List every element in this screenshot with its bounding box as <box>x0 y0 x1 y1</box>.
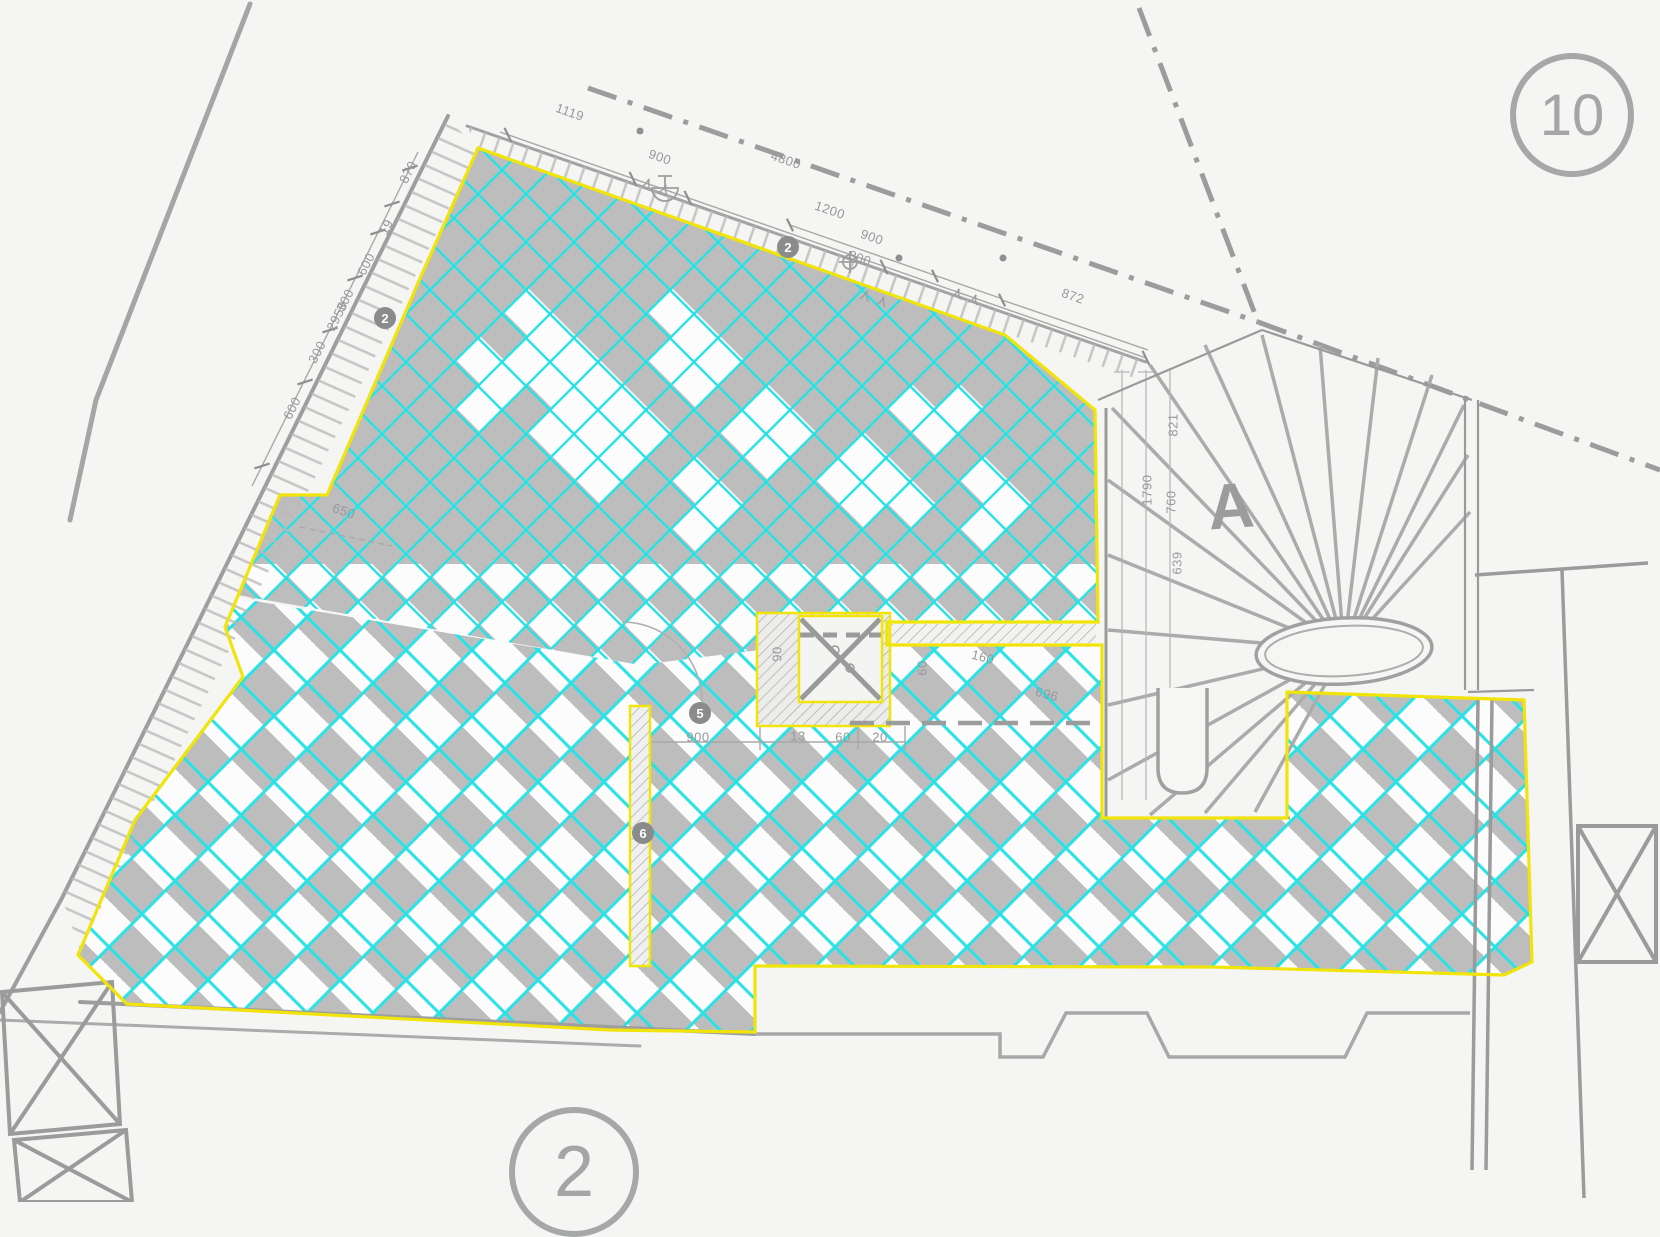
elevator-block <box>757 613 890 726</box>
staircase <box>1098 330 1534 818</box>
right-context-walls <box>1472 563 1656 1198</box>
floor-plan-sheet: ⋏ ⋏ ⋏ ⋏ ⋏ ⋏ <box>0 0 1660 1202</box>
plan-linework: ⋏ ⋏ ⋏ ⋏ ⋏ ⋏ <box>0 0 1660 1202</box>
internal-wall <box>630 706 650 966</box>
neighbor-footprint <box>755 1013 1470 1057</box>
sidewalk-hatch-left <box>62 118 478 950</box>
left-context-walls <box>2 982 132 1202</box>
stair-lower-landing <box>1158 688 1207 793</box>
dimension-dots <box>637 128 1007 262</box>
corridor-strip <box>889 624 1096 643</box>
